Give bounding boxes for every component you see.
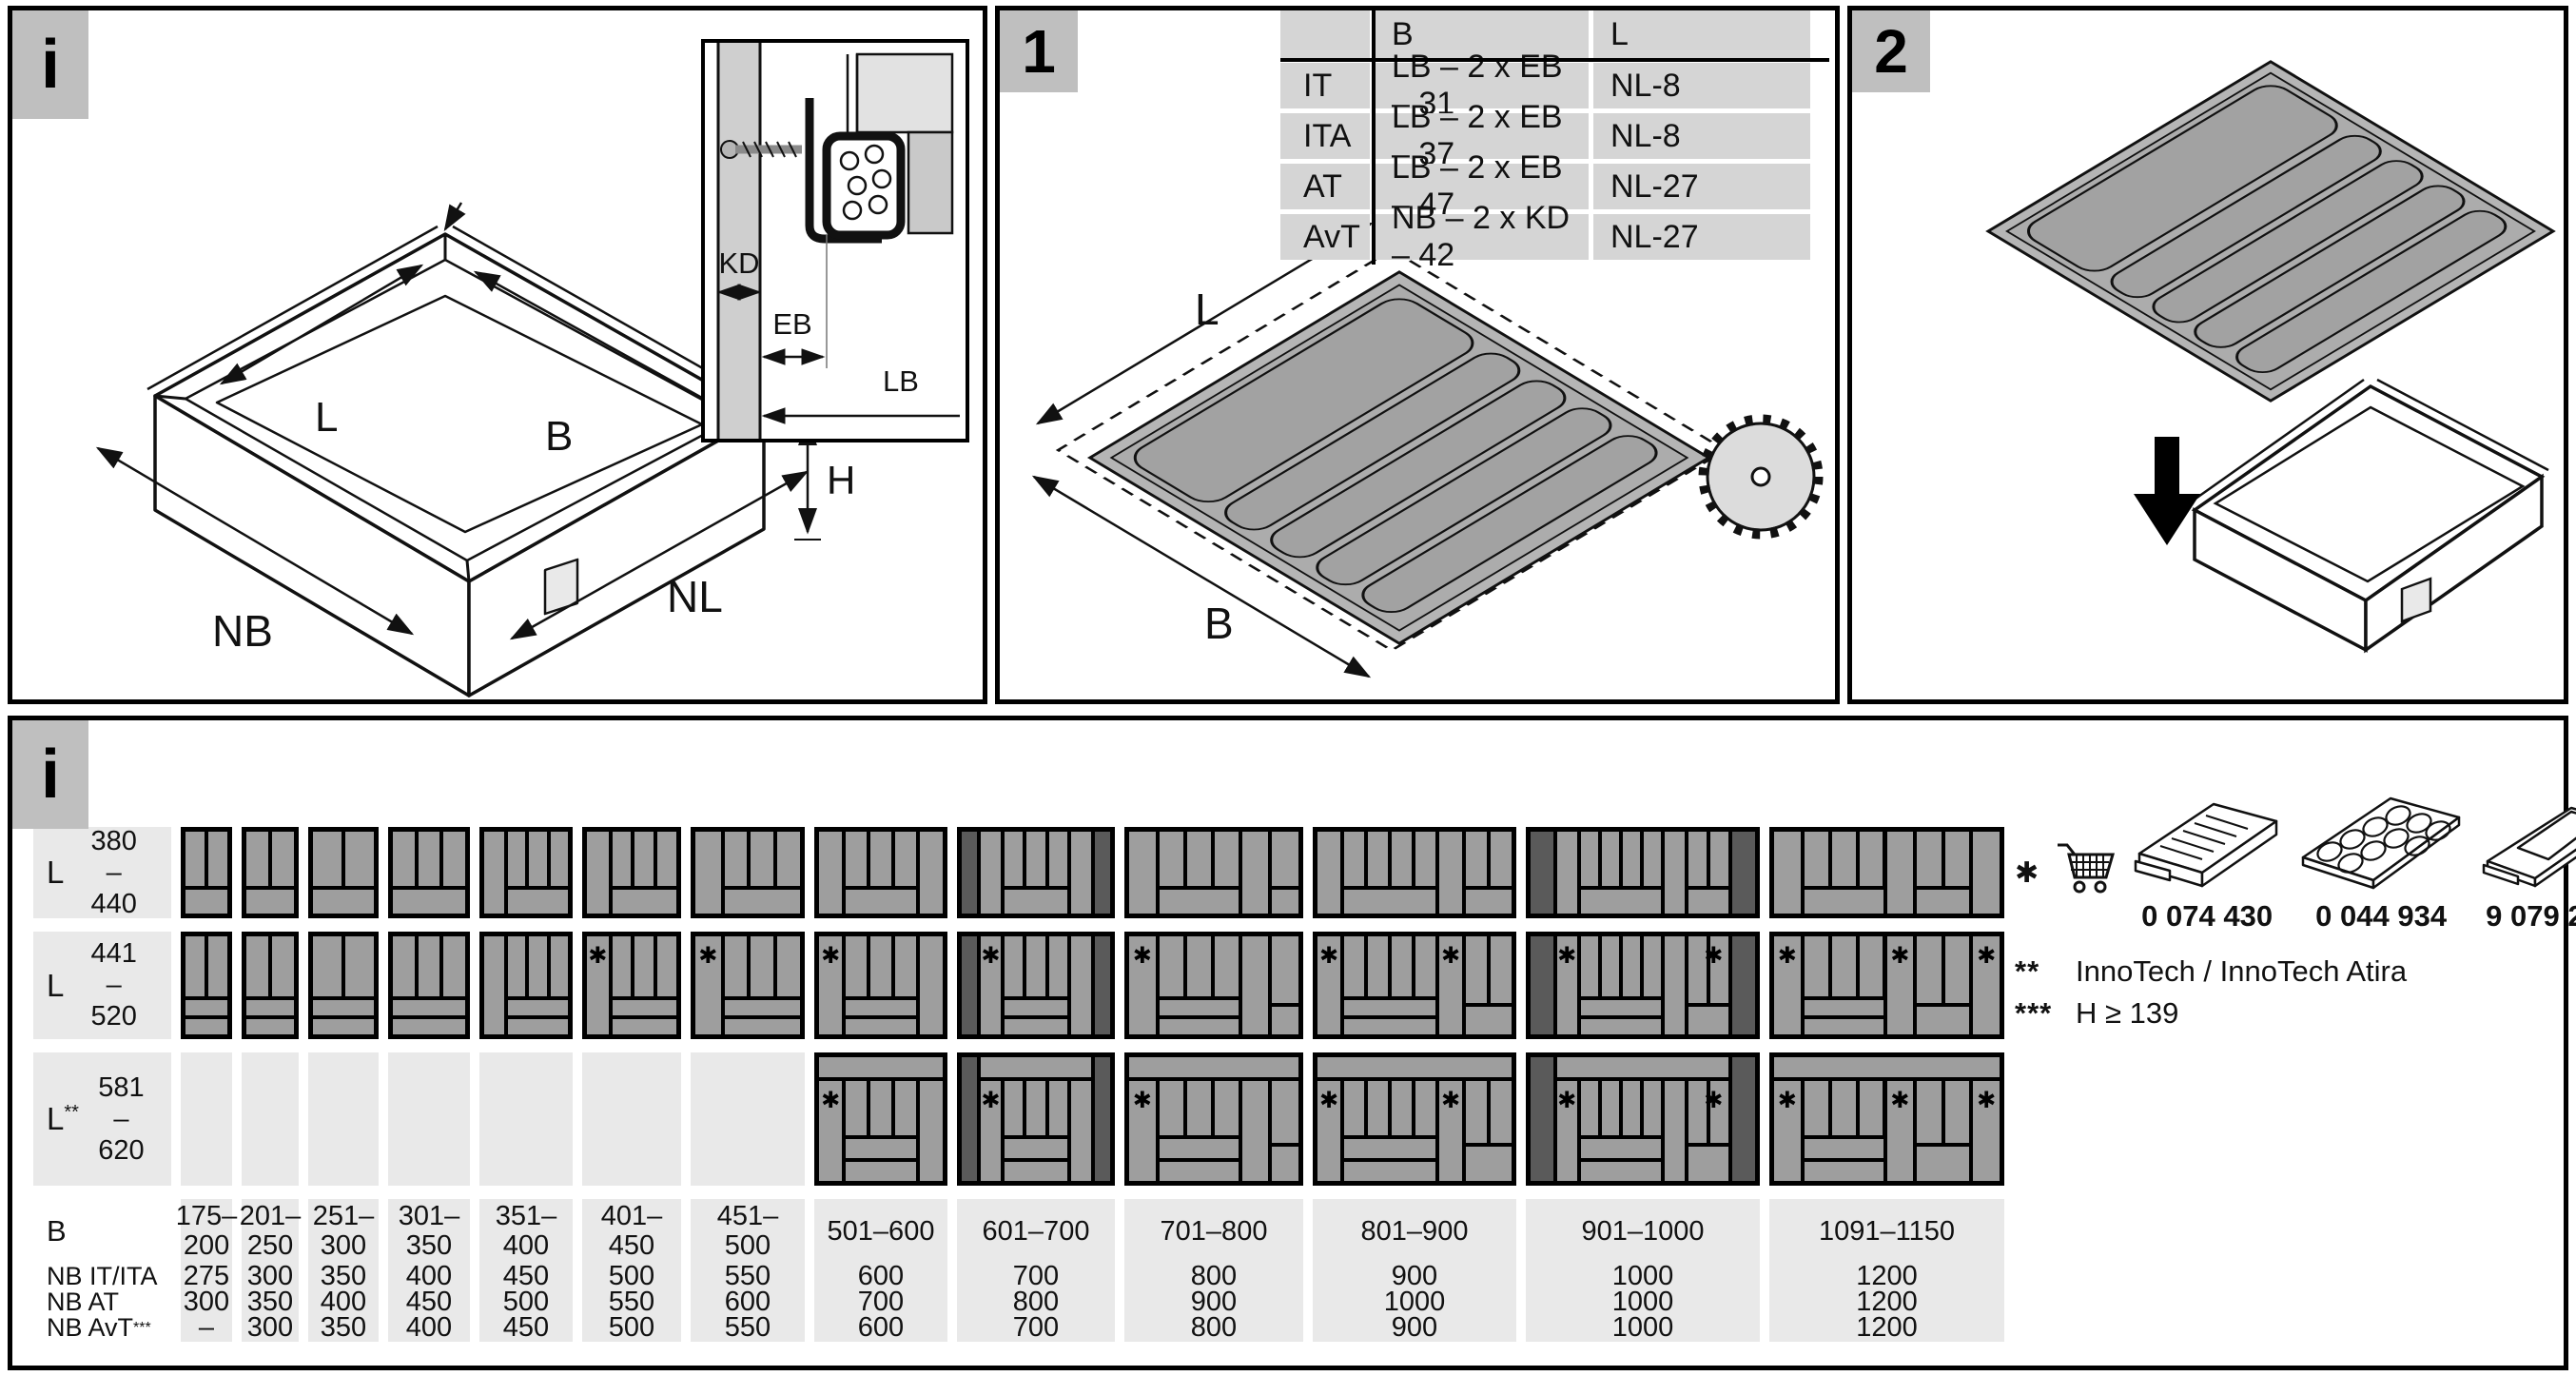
matrix-cell: [479, 827, 573, 918]
tray-compartment: ✱: [819, 1081, 842, 1181]
cutlery-tray-icon: ✱: [1124, 932, 1303, 1039]
tray-slot: [1005, 832, 1023, 886]
matrix-cell: ✱: [814, 932, 947, 1039]
matrix-cell: [1129, 832, 1298, 914]
matrix-cell: ✱✱✱: [1774, 1081, 2000, 1181]
matrix-cell: ✱✱: [1557, 1057, 1729, 1181]
asterisk-icon: ✱: [1133, 942, 1152, 970]
tray-compartment: ✱: [1317, 1081, 1340, 1181]
matrix-cell: [691, 827, 805, 918]
tray-compartment-group: [313, 936, 374, 1034]
matrix-cell: ✱: [587, 936, 676, 1034]
tray-slot: [1392, 936, 1412, 996]
tray-slot: [895, 936, 916, 996]
tray-slot: [443, 936, 465, 996]
tray-compartment-group: [613, 832, 677, 914]
asterisk-icon: ✱: [1977, 942, 1996, 970]
asterisk-icon: ✱: [1319, 942, 1338, 970]
matrix-cell: ✱: [582, 932, 681, 1039]
tray-compartment-group: [1005, 832, 1066, 914]
tray-strip: [185, 1000, 227, 1015]
nb-value: 450: [479, 1315, 573, 1341]
matrix-cell: [1313, 827, 1516, 918]
bottom-row-labels: BNB IT/ITANB ATNB AvT***: [33, 1199, 171, 1342]
tray-slots: [846, 1081, 915, 1135]
tray-top-strip: [981, 1057, 1092, 1077]
tray-strip: [1581, 890, 1661, 914]
matrix-cell: [957, 827, 1115, 918]
tray-slot: [657, 936, 676, 996]
nb-value: 1200: [1769, 1315, 2004, 1341]
matrix-cell: [1317, 832, 1512, 914]
double-asterisk-marker: **: [2015, 954, 2076, 989]
tray-strip: [1272, 890, 1298, 914]
tray-slots: [846, 936, 915, 996]
tray-compartment-group: [725, 936, 801, 1034]
matrix-cell: [313, 936, 374, 1034]
dim-L-label: L: [315, 394, 338, 441]
tray-slot: [1644, 936, 1661, 996]
tray-top-strip: [819, 1057, 943, 1077]
tray-slot: [508, 832, 525, 886]
tray-strip: [1160, 1019, 1239, 1034]
matrix-cell: [695, 832, 800, 914]
matrix-cell: ✱: [819, 1081, 943, 1181]
tray-strip: [1005, 1162, 1066, 1181]
row-label-L: L441–520: [33, 932, 171, 1039]
tray-compartment: [819, 832, 842, 914]
tray-compartment: ✱: [981, 936, 1002, 1034]
nb-value: 800: [957, 1289, 1115, 1315]
tray-slots: [1466, 832, 1512, 886]
cutlery-tray-icon: ✱✱✱: [1769, 1052, 2004, 1186]
matrix-cell: [1774, 832, 2000, 914]
tray-strip: [313, 1019, 374, 1034]
tray-compartment-group: [846, 1081, 915, 1181]
asterisk-icon: ✱: [588, 942, 607, 970]
matrix-cell: [484, 936, 568, 1034]
row-b-formula: NB – 2 x KD – 42: [1375, 214, 1589, 260]
matrix-bottom-cell: 501–600600700600: [814, 1199, 947, 1342]
tray-strip: [1581, 1019, 1661, 1034]
matrix-cell: [1557, 832, 1729, 914]
tray-slot: [1917, 832, 1942, 886]
matrix-cell: ✱: [957, 1052, 1115, 1186]
dim-NB-label: NB: [212, 606, 273, 656]
tray-slots: [1466, 936, 1512, 1003]
nb-value: 1000: [1526, 1289, 1760, 1315]
panel-info-badge: i: [12, 10, 88, 119]
tray-compartment: ✱: [1887, 1081, 1914, 1181]
asterisk-icon: ✱: [1977, 1087, 1996, 1114]
cutlery-tray-icon: [308, 827, 379, 918]
tray-compartment-group: [1344, 936, 1435, 1034]
tray-slot: [185, 936, 205, 996]
tray-slot: [1644, 1081, 1661, 1135]
matrix-cell: [242, 1052, 299, 1186]
table-corner-cell: [1280, 10, 1370, 58]
tray-slot: [1415, 1081, 1435, 1135]
tray-slot: [846, 832, 867, 886]
tray-slot: [634, 936, 654, 996]
cutlery-tray-icon: ✱✱: [1313, 1052, 1516, 1186]
cutlery-tray-icon: [957, 827, 1115, 918]
matrix-cell: ✱: [981, 1057, 1092, 1181]
dim-LB-label: LB: [883, 364, 919, 398]
tray-strip: [613, 1000, 677, 1015]
tray-strip: [1160, 890, 1239, 914]
tray-strip: [1344, 1139, 1435, 1158]
asterisk-icon: ✱: [1557, 942, 1576, 970]
matrix-cell: ✱: [691, 932, 805, 1039]
tray-strip: [1688, 890, 1728, 914]
asterisk-icon: ✱: [1133, 1087, 1152, 1114]
cutlery-tray-icon: ✱: [814, 932, 947, 1039]
matrix-cell: [981, 832, 1092, 914]
tray-compartment-group: [1344, 1081, 1435, 1181]
matrix-bottom-cell: 451– 500550600550: [691, 1199, 805, 1342]
tray-compartment: [981, 832, 1002, 914]
tray-slot: [1344, 1081, 1364, 1135]
asterisk-icon: ✱: [1319, 1087, 1338, 1114]
matrix-cell: [185, 936, 227, 1034]
tray-compartment: [1242, 936, 1269, 1034]
tray-compartment-group: [185, 832, 227, 914]
tray-compartment: [1071, 936, 1092, 1034]
tray-slot: [1805, 936, 1828, 996]
tray-slot: [1623, 1081, 1640, 1135]
asterisk-icon: ✱: [821, 942, 840, 970]
matrix-cell: ✱✱✱: [1774, 1057, 2000, 1181]
tray-compartment-group: [1917, 936, 1969, 1034]
cutlery-tray-icon: ✱: [582, 932, 681, 1039]
row-l-formula: NL-27: [1593, 164, 1810, 209]
tray-slot: [1688, 832, 1707, 886]
tray-strip: [508, 890, 568, 914]
nb-value: 450: [479, 1264, 573, 1289]
asterisk-icon: ✱: [1441, 1087, 1460, 1114]
tray-slot: [1945, 1081, 1970, 1143]
nb-row-label: NB IT/ITA: [33, 1264, 171, 1289]
tray-slot: [272, 936, 294, 996]
tray-compartment-group: ✱: [1688, 1081, 1728, 1181]
tray-slot: [1945, 832, 1970, 886]
tray-slot: [1026, 832, 1044, 886]
footnote-line: *** H ≥ 139: [2015, 996, 2547, 1031]
footnote-text: InnoTech / InnoTech Atira: [2076, 954, 2407, 989]
tray-strip: [508, 1000, 568, 1015]
nb-value: 350: [242, 1289, 299, 1315]
tray-slot: [313, 936, 342, 996]
length-row-label: L**: [47, 1101, 79, 1137]
nb-value: 500: [582, 1315, 681, 1341]
tray-compartment-group: [1917, 832, 1969, 914]
dim-L-label: L: [1195, 285, 1220, 334]
tray-compartment: [1774, 832, 1801, 914]
matrix-cell: ✱: [819, 936, 943, 1034]
tray-slots: [846, 832, 915, 886]
product-item: 9 079 207: [2480, 787, 2576, 934]
tray-strip: [1917, 1007, 1969, 1034]
tray-slot: [870, 936, 891, 996]
tray-slots: [725, 936, 801, 996]
tray-slot: [1368, 936, 1388, 996]
tray-compartment: ✱: [1557, 936, 1577, 1034]
cutlery-tray-icon: [1124, 827, 1303, 918]
matrix-cell: ✱✱✱: [1769, 932, 2004, 1039]
tray-strip: [846, 1000, 915, 1015]
tray-slot: [208, 832, 227, 886]
tray-slots: [1917, 936, 1969, 1003]
tray-slot: [529, 832, 546, 886]
matrix-cell: [1124, 827, 1303, 918]
tray-compartment: [1973, 832, 2000, 914]
tray-compartment: [1439, 832, 1462, 914]
nb-value: 800: [1124, 1264, 1303, 1289]
cutlery-tray-icon: [242, 932, 299, 1039]
asterisk-icon: ✱: [698, 942, 717, 970]
tray-compartment-group: [1272, 832, 1298, 914]
tray-strip: [1805, 1019, 1883, 1034]
tray-slot: [1049, 832, 1067, 886]
matrix-cell: [691, 1052, 805, 1186]
row-name: AvT: [1280, 214, 1370, 260]
tray-strip: [393, 890, 465, 914]
tray-strip: [246, 1019, 294, 1034]
matrix-cell: ✱✱✱: [1769, 1052, 2004, 1186]
matrix-cell: ✱✱✱: [1774, 936, 2000, 1034]
tray-slot: [393, 832, 415, 886]
nb-value: 350: [308, 1315, 379, 1341]
tray-slots: [1581, 832, 1661, 886]
matrix-cell: ✱: [1129, 1057, 1298, 1181]
matrix-cell: ✱: [981, 1081, 1092, 1181]
footnote-text: H ≥ 139: [2076, 996, 2178, 1031]
tray-strip: [1344, 1162, 1435, 1181]
b-range-value: 301– 350: [388, 1199, 470, 1264]
product-code: 0 074 430: [2141, 899, 2273, 934]
tray-slots: [1272, 936, 1298, 1003]
matrix-cell: [181, 1052, 232, 1186]
tray-slots: [508, 832, 568, 886]
tray-compartment: ✱: [1439, 1081, 1462, 1181]
tray-compartment: [1665, 1081, 1685, 1181]
tray-slot: [551, 936, 568, 996]
dark-side-strip: [1095, 1057, 1110, 1181]
tray-strip: [725, 1019, 801, 1034]
tray-strip: [1005, 1019, 1066, 1034]
tray-strip: [1581, 1000, 1661, 1015]
tray-strip: [1688, 1147, 1728, 1181]
tray-slot: [1805, 832, 1828, 886]
b-range-value: 901–1000: [1526, 1199, 1760, 1264]
nb-value: 400: [388, 1315, 470, 1341]
matrix-cell: [582, 827, 681, 918]
tray-slots: [1160, 936, 1239, 996]
tray-slot: [1860, 1081, 1883, 1135]
product-code: 0 044 934: [2315, 899, 2447, 934]
tray-strip: [246, 1000, 294, 1015]
cutlery-tray-icon: [479, 932, 573, 1039]
matrix-cell: [1526, 827, 1760, 918]
instruction-sheet: i: [0, 0, 2576, 1376]
tray-compartment-group: [1805, 832, 1883, 914]
nb-value: 300: [242, 1315, 299, 1341]
tray-compartment-group: [1466, 936, 1512, 1034]
tray-slot: [1215, 936, 1239, 996]
tray-strip: [1688, 1007, 1728, 1034]
tray-compartment-group: [246, 832, 294, 914]
tray-compartment-group: [1466, 1081, 1512, 1181]
dark-side-strip: [1531, 832, 1553, 914]
nb-value: 550: [582, 1289, 681, 1315]
tray-slot: [529, 936, 546, 996]
tray-slot: [1466, 832, 1487, 886]
nb-value: 900: [1313, 1264, 1516, 1289]
tray-slot: [1368, 832, 1388, 886]
matrix-cell: [181, 932, 232, 1039]
tray-compartment: [1071, 832, 1092, 914]
tray-compartment: [1242, 1081, 1269, 1181]
tray-compartment-group: [313, 832, 374, 914]
cutlery-tray-icon: [479, 827, 573, 918]
length-row-label: L: [47, 855, 64, 891]
tray-compartment: ✱: [1774, 936, 1801, 1034]
legend-products-row: ✱: [2015, 787, 2547, 934]
tray-strip: [613, 1019, 677, 1034]
tray-compartment: [1242, 832, 1269, 914]
tray-compartment: [920, 1081, 943, 1181]
nb-value: 550: [691, 1264, 805, 1289]
tray-slot: [1860, 936, 1883, 996]
tray-slot: [895, 1081, 916, 1135]
nb-value: 600: [814, 1264, 947, 1289]
tray-slots: [1160, 832, 1239, 886]
matrix-cell: [308, 827, 379, 918]
matrix-cell: [484, 832, 568, 914]
tray-slots: [246, 936, 294, 996]
tray-compartment-group: [185, 936, 227, 1034]
nb-value: –: [181, 1315, 232, 1341]
tray-slot: [1491, 936, 1512, 1003]
tray-compartment: [484, 832, 504, 914]
tray-strip: [1005, 1139, 1066, 1158]
cutlery-tray-icon: [814, 827, 947, 918]
panel-step2-badge: 2: [1852, 10, 1930, 92]
cutlery-tray-icon: ✱✱: [1526, 932, 1760, 1039]
tray-strip: [1466, 890, 1512, 914]
tray-strip: [1005, 1000, 1066, 1015]
nb-value: 700: [814, 1289, 947, 1315]
matrix-cell: [308, 932, 379, 1039]
matrix-cell: [308, 1052, 379, 1186]
tray-compartment: ✱: [1973, 936, 2000, 1034]
tray-compartment-group: [1917, 1081, 1969, 1181]
tray-strip: [1805, 1162, 1883, 1181]
matrix-bottom-cell: 1091–1150120012001200: [1769, 1199, 2004, 1342]
asterisk-icon: ✱: [1890, 1087, 1909, 1114]
matrix-bottom-cell: 301– 350400450400: [388, 1199, 470, 1342]
nb-value: 1200: [1769, 1264, 2004, 1289]
matrix-cell: [388, 1052, 470, 1186]
matrix-cell: ✱: [695, 936, 800, 1034]
cutlery-tray-icon: ✱: [691, 932, 805, 1039]
tray-slot: [1160, 832, 1183, 886]
nb-value: 700: [957, 1315, 1115, 1341]
tray-compartment: ✱: [1439, 936, 1462, 1034]
dark-side-strip: [962, 1057, 977, 1181]
cutlery-tray-icon: [181, 827, 232, 918]
tray-slot: [846, 1081, 867, 1135]
matrix-cell: [181, 827, 232, 918]
tray-strip: [508, 1019, 568, 1034]
nb-value: 450: [388, 1289, 470, 1315]
asterisk-icon: ✱: [981, 1087, 1000, 1114]
tray-slots: [393, 936, 465, 996]
tray-slots: [1344, 1081, 1435, 1135]
matrix-bottom-cell: 201– 250300350300: [242, 1199, 299, 1342]
matrix-bottom-cell: 251– 300350400350: [308, 1199, 379, 1342]
tray-slots: [1005, 832, 1066, 886]
tray-slot: [751, 936, 773, 996]
tray-slots: [1160, 1081, 1239, 1135]
tray-slots: [1344, 832, 1435, 886]
tray-compartment-group: [613, 936, 677, 1034]
runner-profile-drawing: KD EB LB: [705, 43, 966, 439]
tray-slot: [1272, 936, 1298, 1003]
tray-slot: [1344, 832, 1364, 886]
tray-strip: [613, 890, 677, 914]
matrix-cell: [587, 832, 676, 914]
tray-compartment-group: [1805, 936, 1883, 1034]
cutlery-tray-icon: [582, 827, 681, 918]
matrix-bottom-cell: 351– 400450500450: [479, 1199, 573, 1342]
tray-slot: [1026, 936, 1044, 996]
b-range-value: 251– 300: [308, 1199, 379, 1264]
tray-slot: [246, 936, 268, 996]
nb-value: 400: [308, 1289, 379, 1315]
tray-top-strip: [1317, 1057, 1512, 1077]
tray-compartment: [1317, 832, 1340, 914]
tray-compartment-group: [246, 936, 294, 1034]
tray-slot: [208, 936, 227, 996]
asterisk-icon: ✱: [1557, 1087, 1576, 1114]
tray-compartment: [920, 832, 943, 914]
tray-compartment-group: [393, 936, 465, 1034]
cutlery-tray-icon: ✱: [1124, 1052, 1303, 1186]
tray-strip: [1160, 1139, 1239, 1158]
col-header-L: L: [1593, 10, 1810, 58]
tray-compartment: ✱: [819, 936, 842, 1034]
tray-slot: [1602, 832, 1619, 886]
dim-H-label: H: [827, 458, 855, 502]
tray-slot: [1160, 1081, 1183, 1135]
tray-strip: [393, 1019, 465, 1034]
tray-slots: [1917, 832, 1969, 886]
matrix-cell: [819, 832, 943, 914]
tray-compartment-group: [393, 832, 465, 914]
tray-strip: [1272, 1147, 1298, 1181]
tray-compartment-group: [1272, 936, 1298, 1034]
matrix-cell: [582, 1052, 681, 1186]
tray-slot: [1623, 936, 1640, 996]
asterisk-icon: ✱: [1778, 942, 1797, 970]
matrix-cell: ✱✱: [1557, 1081, 1729, 1181]
tray-strip: [846, 1019, 915, 1034]
tray-slots: [313, 936, 374, 996]
row-l-formula: NL-8: [1593, 113, 1810, 159]
dim-B-label: B: [545, 413, 573, 460]
